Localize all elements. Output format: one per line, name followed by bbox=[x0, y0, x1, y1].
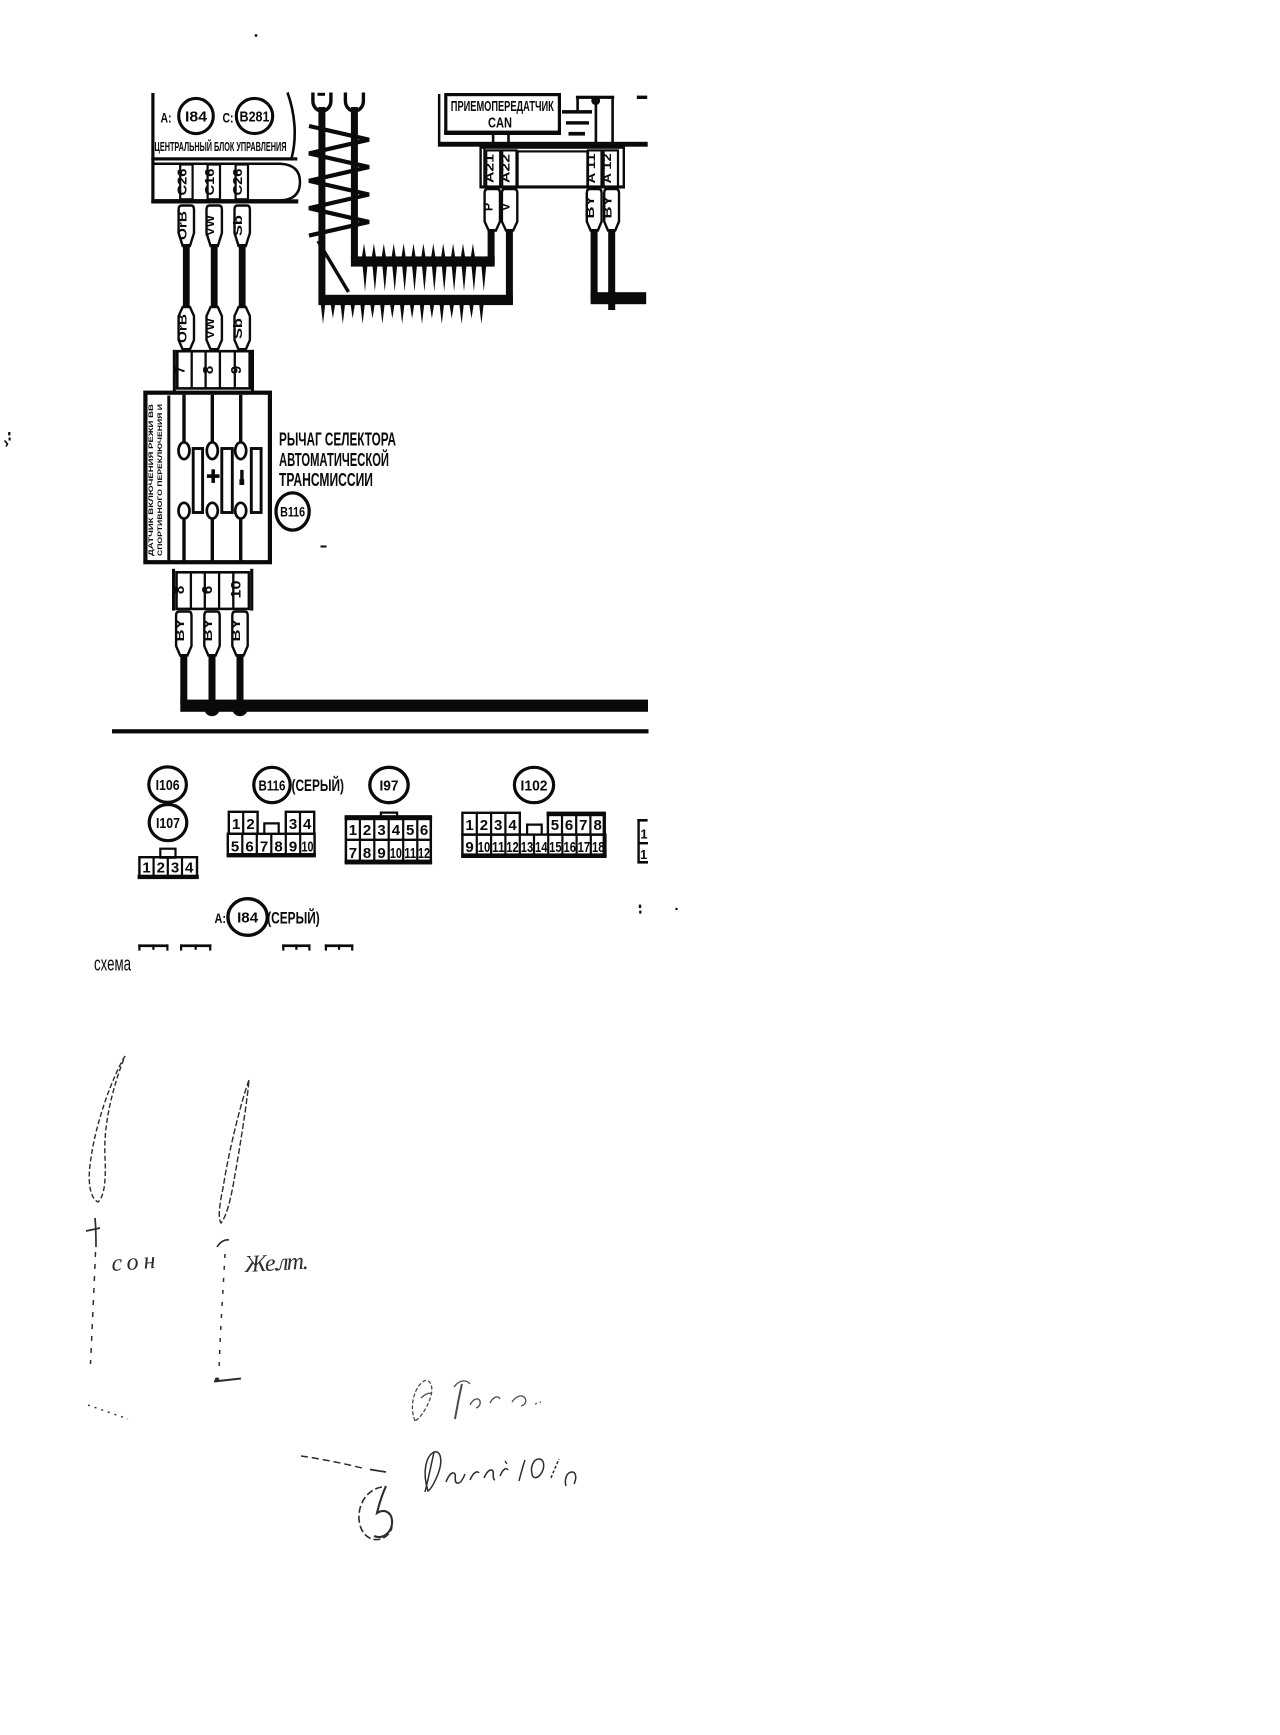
svg-text:6: 6 bbox=[199, 586, 216, 594]
svg-text:V: V bbox=[499, 202, 513, 211]
svg-text:C:: C: bbox=[223, 111, 234, 126]
svg-text:11: 11 bbox=[404, 845, 416, 862]
svg-text:10: 10 bbox=[390, 845, 402, 862]
svg-text:1: 1 bbox=[640, 847, 647, 862]
svg-text:АВТОМАТИЧЕСКОЙ: АВТОМАТИЧЕСКОЙ bbox=[279, 449, 389, 470]
svg-text:8: 8 bbox=[171, 586, 188, 594]
svg-text:7: 7 bbox=[172, 366, 189, 374]
svg-text:A21: A21 bbox=[484, 153, 496, 183]
svg-text:A 11: A 11 bbox=[586, 153, 598, 184]
svg-text:8: 8 bbox=[274, 838, 282, 855]
svg-text:6: 6 bbox=[245, 838, 253, 855]
svg-text:схема: схема bbox=[94, 954, 132, 976]
svg-text:2: 2 bbox=[363, 822, 371, 839]
svg-text:VW: VW bbox=[203, 214, 217, 236]
svg-text:10: 10 bbox=[227, 580, 243, 598]
svg-text:6: 6 bbox=[420, 822, 428, 839]
svg-text:VW: VW bbox=[203, 317, 217, 339]
svg-text:2: 2 bbox=[157, 859, 165, 876]
svg-text:СПОРТИВНОГО ПЕРЕКЛЮЧЕНИЯ И: СПОРТИВНОГО ПЕРЕКЛЮЧЕНИЯ И bbox=[157, 404, 164, 556]
svg-text:3: 3 bbox=[494, 817, 502, 834]
svg-text:3: 3 bbox=[171, 859, 179, 876]
svg-text:Sb: Sb bbox=[231, 318, 245, 339]
svg-text:8: 8 bbox=[200, 366, 217, 374]
svg-text:18: 18 bbox=[592, 839, 605, 856]
svg-text:5: 5 bbox=[551, 817, 559, 834]
svg-text:C16: C16 bbox=[202, 169, 217, 196]
svg-text:9: 9 bbox=[289, 838, 297, 855]
svg-text:A22: A22 bbox=[501, 154, 513, 183]
svg-text:I106: I106 bbox=[156, 777, 180, 794]
svg-text:OrB: OrB bbox=[175, 314, 189, 343]
svg-text:7: 7 bbox=[579, 817, 587, 834]
svg-text:ДАТЧИК ВКЛЮЧЕНИЯ РЕЖИ ВВ: ДАТЧИК ВКЛЮЧЕНИЯ РЕЖИ ВВ bbox=[148, 404, 155, 556]
svg-text:B116: B116 bbox=[259, 777, 286, 794]
svg-text:BY: BY bbox=[603, 195, 615, 218]
svg-text:14: 14 bbox=[535, 839, 548, 856]
svg-text:Же.лт.: Же.лт. bbox=[243, 1249, 309, 1278]
svg-text:2: 2 bbox=[246, 816, 254, 833]
svg-text:4: 4 bbox=[303, 816, 312, 833]
svg-text:12: 12 bbox=[418, 845, 430, 862]
svg-text:I84: I84 bbox=[237, 909, 259, 926]
svg-text:17: 17 bbox=[578, 839, 591, 856]
svg-text:ПРИЕМОПЕРЕДАТЧИК: ПРИЕМОПЕРЕДАТЧИК bbox=[451, 99, 554, 115]
svg-text:4: 4 bbox=[185, 859, 194, 876]
svg-text:C26: C26 bbox=[174, 169, 189, 196]
svg-text:ТРАНСМИССИИ: ТРАНСМИССИИ bbox=[279, 470, 373, 490]
svg-text:I97: I97 bbox=[380, 777, 399, 794]
svg-text:12: 12 bbox=[506, 839, 519, 856]
svg-text:2: 2 bbox=[480, 817, 488, 834]
svg-text:BY: BY bbox=[201, 619, 215, 642]
svg-text:5: 5 bbox=[406, 822, 414, 839]
svg-text:(СЕРЫЙ): (СЕРЫЙ) bbox=[292, 776, 345, 795]
svg-text:7: 7 bbox=[349, 845, 357, 862]
svg-text:B116: B116 bbox=[280, 504, 305, 520]
svg-text:A:: A: bbox=[161, 111, 172, 126]
svg-text:9: 9 bbox=[465, 839, 473, 856]
svg-text:BY: BY bbox=[585, 195, 597, 218]
svg-text:4: 4 bbox=[392, 822, 401, 839]
svg-text:BY: BY bbox=[229, 619, 243, 642]
svg-text:1: 1 bbox=[349, 822, 357, 839]
svg-text:I107: I107 bbox=[156, 815, 180, 832]
svg-text:6: 6 bbox=[565, 817, 573, 834]
svg-text:РЫЧАГ СЕЛЕКТОРА: РЫЧАГ СЕЛЕКТОРА bbox=[279, 430, 396, 450]
svg-text:OrB: OrB bbox=[175, 211, 189, 240]
svg-text:I84: I84 bbox=[185, 109, 208, 126]
svg-text:16: 16 bbox=[563, 839, 576, 856]
svg-text:Sb: Sb bbox=[231, 215, 245, 236]
svg-text:1: 1 bbox=[142, 859, 150, 876]
svg-text:3: 3 bbox=[377, 822, 385, 839]
svg-text:A 12: A 12 bbox=[602, 154, 614, 184]
svg-text:B281: B281 bbox=[240, 109, 270, 126]
svg-text:10: 10 bbox=[302, 838, 314, 855]
svg-text:10: 10 bbox=[478, 839, 491, 856]
svg-text:1: 1 bbox=[232, 816, 240, 833]
svg-text:15: 15 bbox=[549, 839, 562, 856]
svg-text:4: 4 bbox=[508, 817, 517, 834]
svg-text:сон: сон bbox=[111, 1248, 157, 1277]
svg-text:5: 5 bbox=[231, 838, 239, 855]
svg-text:BY: BY bbox=[173, 619, 187, 642]
svg-text:1: 1 bbox=[465, 817, 473, 834]
svg-text:3: 3 bbox=[289, 816, 297, 833]
svg-text:1: 1 bbox=[640, 826, 647, 841]
svg-text:7: 7 bbox=[260, 838, 268, 855]
svg-text:8: 8 bbox=[594, 817, 602, 834]
svg-text:(СЕРЫЙ): (СЕРЫЙ) bbox=[267, 908, 320, 927]
svg-text:9: 9 bbox=[377, 845, 385, 862]
svg-text:C26: C26 bbox=[230, 168, 245, 195]
svg-text:A:: A: bbox=[215, 911, 227, 926]
svg-text:CAN: CAN bbox=[488, 115, 512, 131]
svg-text:9: 9 bbox=[228, 366, 245, 374]
svg-text:13: 13 bbox=[521, 839, 534, 856]
svg-text:I102: I102 bbox=[521, 777, 548, 794]
svg-text:8: 8 bbox=[363, 845, 371, 862]
svg-text:P: P bbox=[481, 203, 495, 211]
svg-text:ЦЕНТРАЛЬНЫЙ БЛОК УПРАВЛЕНИЯ: ЦЕНТРАЛЬНЫЙ БЛОК УПРАВЛЕНИЯ bbox=[155, 139, 287, 154]
svg-text:11: 11 bbox=[492, 839, 505, 856]
